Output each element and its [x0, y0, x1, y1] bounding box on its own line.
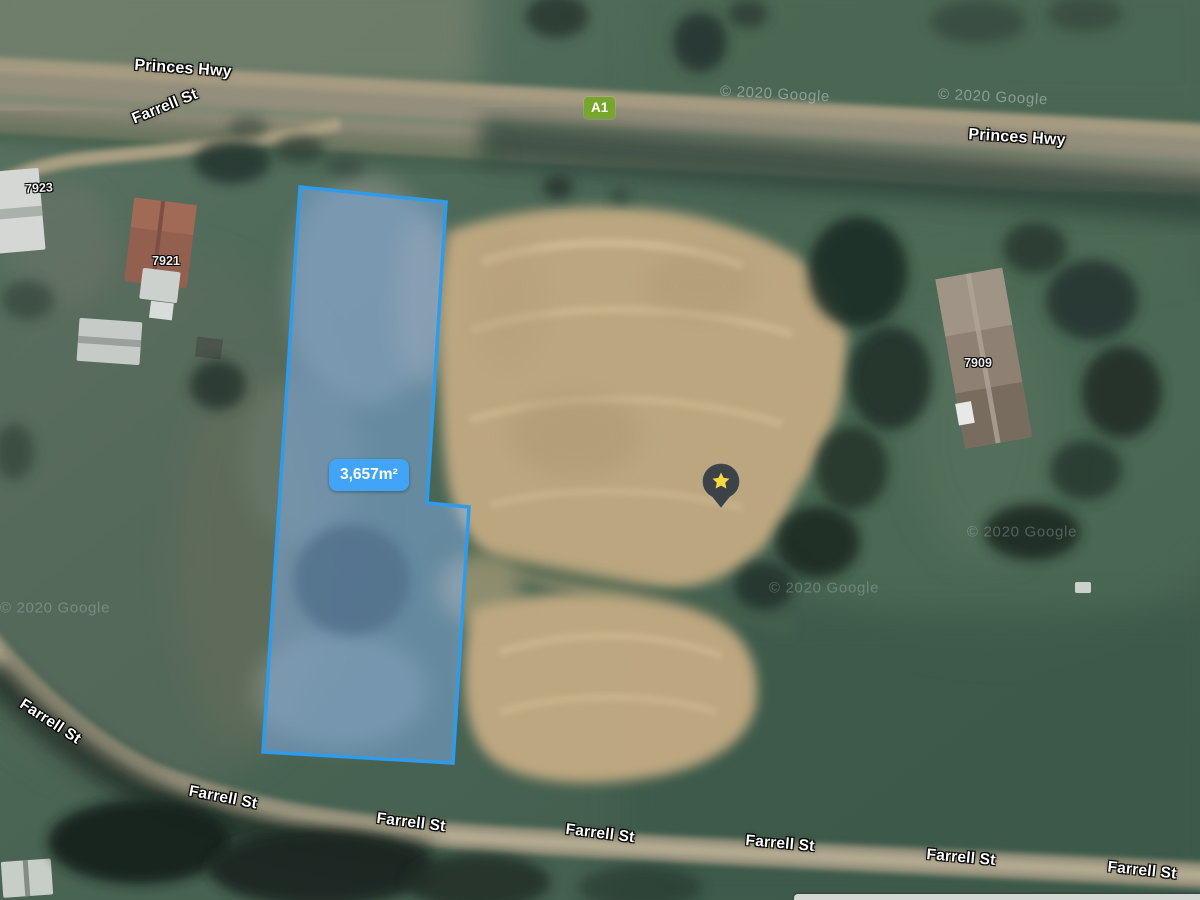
parcel-area-badge[interactable]: 3,657m² — [329, 459, 409, 491]
house-number-7923: 7923 — [25, 180, 54, 195]
google-watermark-4: © 2020 Google — [769, 580, 879, 597]
saved-place-marker[interactable] — [701, 462, 741, 510]
pin-body — [703, 464, 740, 509]
bottom-sheet-handle[interactable] — [794, 894, 1200, 900]
map-canvas[interactable]: A1 3,657m² Princes Hwy Farrell St Prince… — [0, 0, 1200, 900]
google-watermark-5: © 2020 Google — [967, 524, 1077, 541]
google-watermark-3: © 2020 Google — [0, 600, 110, 617]
route-shield-a1: A1 — [584, 97, 615, 119]
house-number-7909: 7909 — [964, 356, 992, 370]
house-number-7921: 7921 — [152, 254, 180, 268]
